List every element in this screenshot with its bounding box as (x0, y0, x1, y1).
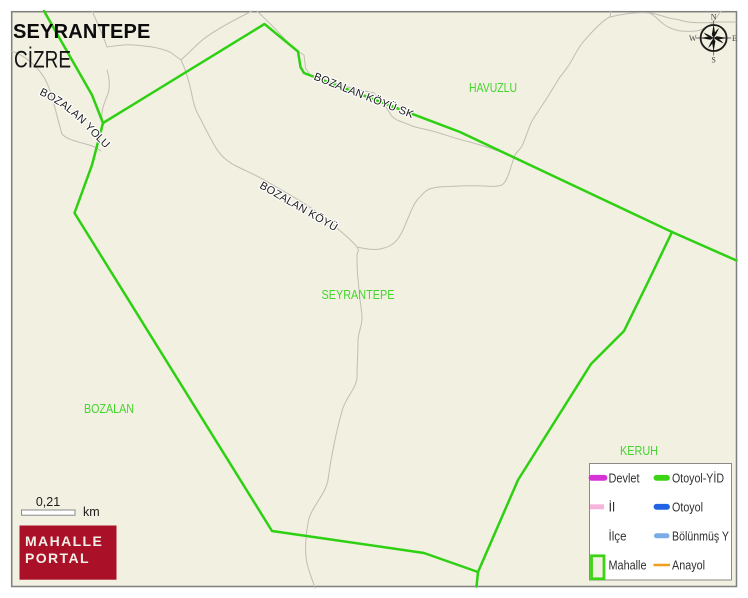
svg-text:HAVUZLU: HAVUZLU (469, 80, 517, 95)
svg-text:km: km (83, 505, 100, 519)
svg-text:BOZALAN: BOZALAN (84, 401, 134, 416)
svg-text:S: S (711, 55, 715, 64)
svg-text:SEYRANTEPE: SEYRANTEPE (322, 287, 395, 302)
svg-text:İlçe: İlçe (609, 529, 627, 544)
svg-text:N: N (711, 13, 717, 22)
svg-text:SEYRANTEPE: SEYRANTEPE (13, 21, 151, 43)
svg-text:Devlet: Devlet (609, 471, 640, 486)
svg-text:MAHALLE: MAHALLE (25, 533, 103, 549)
svg-text:KERUH: KERUH (620, 443, 658, 458)
svg-text:Mahalle: Mahalle (609, 558, 647, 573)
svg-text:Otoyol: Otoyol (672, 500, 703, 515)
svg-text:İl: İl (609, 500, 616, 515)
svg-text:CİZRE: CİZRE (14, 47, 71, 74)
svg-text:PORTAL: PORTAL (25, 550, 90, 566)
svg-text:E: E (732, 34, 737, 43)
svg-text:Bölünmüş Y: Bölünmüş Y (672, 529, 729, 544)
svg-text:W: W (689, 34, 697, 43)
svg-text:Otoyol-YİD: Otoyol-YİD (672, 471, 724, 486)
svg-text:0,21: 0,21 (36, 495, 60, 509)
svg-text:Anayol: Anayol (672, 558, 705, 573)
